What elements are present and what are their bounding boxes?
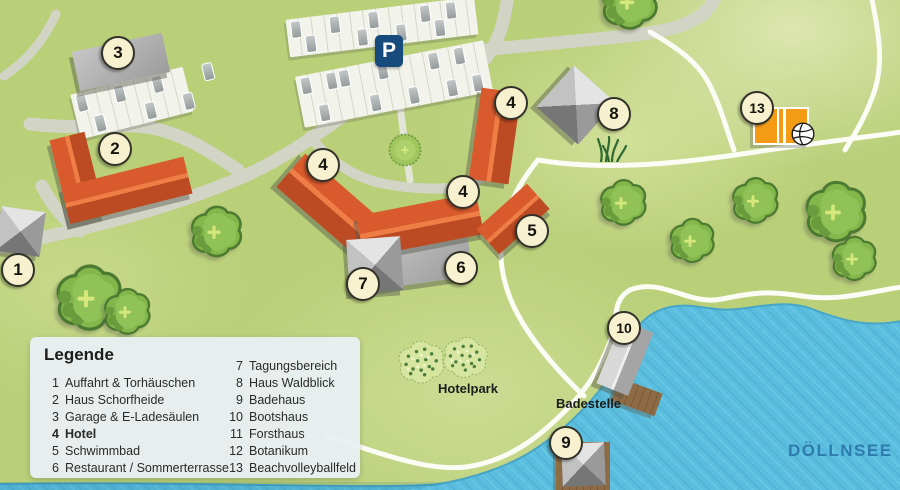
legend-number: 12 [226,444,243,458]
car-icon [369,93,383,113]
car-icon [75,93,90,113]
legend-item-9: 9Badehaus [226,393,305,407]
car-icon [325,71,339,91]
legend-number: 2 [42,393,59,407]
legend-number: 8 [226,376,243,390]
legend-label: Forsthaus [249,427,305,441]
legend-title: Legende [44,345,114,365]
map-marker-2: 2 [98,132,132,166]
legend-label: Schwimmbad [65,444,140,458]
lake-label: DÖLLNSEE [788,441,893,461]
car-icon [290,20,303,39]
map-marker-10: 10 [607,311,641,345]
car-icon [444,1,457,20]
car-icon [150,74,165,94]
legend-panel: Legende 1Auffahrt & Torhäuschen 2Haus Sc… [30,337,360,478]
car-icon [452,46,466,66]
legend-item-13: 13Beachvolleyballfeld [226,461,356,475]
tree-icon [724,171,782,229]
shore-strip [0,482,445,490]
car-icon [299,76,313,96]
map-marker-6: 6 [444,251,478,285]
map-marker-3: 3 [101,36,135,70]
legend-number: 5 [42,444,59,458]
parking-sign: P [375,35,403,67]
tree-icon [592,173,650,231]
legend-number: 9 [226,393,243,407]
tree-icon [182,199,246,263]
legend-label: Haus Waldblick [249,376,335,390]
car-icon [337,68,351,88]
legend-item-11: 11Forsthaus [226,427,305,441]
car-icon [367,10,380,29]
court-line [783,109,786,143]
legend-number: 10 [226,410,243,424]
map-marker-9: 9 [549,426,583,460]
map-marker-13: 13 [740,91,774,125]
tree-icon [592,0,662,36]
grass-icon [597,136,627,162]
building-torhaus [0,206,46,257]
legend-item-6: 6Restaurant / Sommerterrasse [42,461,229,475]
legend-number: 1 [42,376,59,390]
volleyball-icon [791,122,815,146]
legend-label: Auffahrt & Torhäuschen [65,376,195,390]
car-icon [407,86,421,106]
tree-icon [96,282,154,340]
legend-number: 4 [42,427,59,441]
legend-number: 11 [226,427,243,441]
tree-icon [824,230,880,286]
car-icon [419,4,432,23]
car-icon [356,28,369,47]
legend-item-8: 8Haus Waldblick [226,376,335,390]
legend-item-2: 2Haus Schorfheide [42,393,164,407]
map-marker-8: 8 [597,97,631,131]
map: Hotelpark Badestelle DÖLLNSEE P 1 2 3 4 … [0,0,900,490]
map-marker-1: 1 [1,253,35,287]
map-marker-4c: 4 [494,86,528,120]
legend-label: Haus Schorfheide [65,393,164,407]
legend-number: 6 [42,461,59,475]
legend-label: Badehaus [249,393,305,407]
car-icon [427,51,441,71]
court-line [777,109,780,143]
legend-label: Hotel [65,427,96,441]
car-icon [433,18,446,37]
legend-item-4: 4Hotel [42,427,96,441]
legend-item-10: 10Bootshaus [226,410,308,424]
map-marker-4b: 4 [446,175,480,209]
car-icon [445,78,459,98]
legend-number: 3 [42,410,59,424]
legend-item-7: 7Tagungsbereich [226,359,337,373]
tree-icon [662,212,718,268]
map-marker-5: 5 [515,214,549,248]
legend-label: Botanikum [249,444,308,458]
legend-number: 13 [226,461,243,475]
legend-item-3: 3Garage & E-Ladesäulen [42,410,199,424]
car-icon [304,34,317,53]
round-tree-icon [387,132,423,168]
legend-item-12: 12Botanikum [226,444,308,458]
map-marker-7: 7 [346,267,380,301]
car-icon [112,84,127,104]
legend-number: 7 [226,359,243,373]
legend-label: Restaurant / Sommerterrasse [65,461,229,475]
car-icon [328,15,341,34]
legend-label: Garage & E-Ladesäulen [65,410,199,424]
badestelle-label: Badestelle [556,396,621,411]
car-icon [318,103,332,123]
map-marker-4a: 4 [306,148,340,182]
legend-item-5: 5Schwimmbad [42,444,140,458]
legend-label: Beachvolleyballfeld [249,461,356,475]
hotelpark-label: Hotelpark [438,381,498,396]
legend-label: Tagungsbereich [249,359,337,373]
legend-label: Bootshaus [249,410,308,424]
legend-item-1: 1Auffahrt & Torhäuschen [42,376,195,390]
